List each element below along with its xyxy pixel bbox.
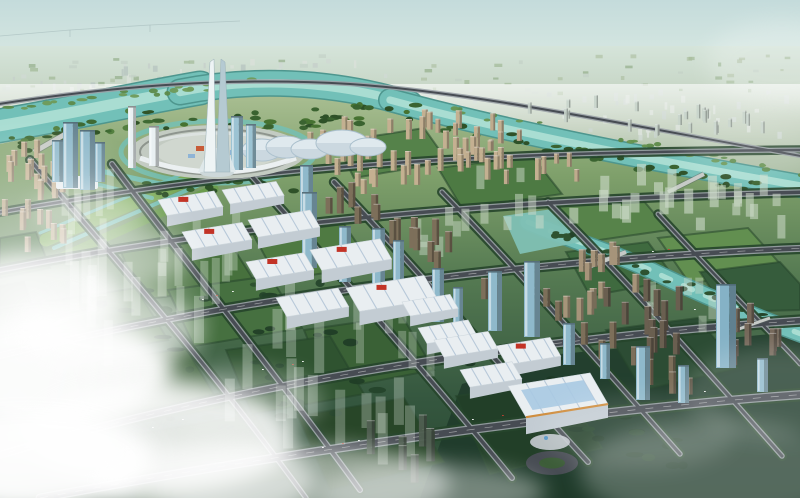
residential-slabs-part: [560, 301, 563, 321]
residential-slabs-part: [752, 303, 755, 324]
residential-slabs-part: [674, 371, 677, 393]
residential-slabs-part: [374, 204, 381, 205]
ghost-buildings-part: [684, 278, 692, 296]
distant-city-part: [519, 60, 523, 64]
distant-city-part: [421, 78, 427, 81]
clouds-part: [153, 366, 323, 438]
residential-slabs-part: [431, 112, 433, 130]
strip-office-towers: [524, 261, 540, 263]
residential-slabs-part: [541, 156, 546, 157]
residential-slabs-part: [494, 155, 500, 156]
residential-slabs-part: [411, 217, 418, 218]
distant-city-part: [121, 61, 128, 64]
residential-slabs-part: [554, 154, 557, 164]
residential-slabs-part: [658, 289, 661, 316]
plaza-east-towers: [246, 124, 256, 126]
residential-slabs-part: [414, 164, 418, 185]
residential-slabs-part: [622, 302, 627, 325]
residential-slabs-part: [488, 140, 493, 141]
residential-slabs-part: [391, 150, 395, 170]
residential-slabs-part: [564, 108, 568, 109]
tree-bands-part: [21, 107, 28, 110]
residential-slabs-part: [703, 110, 707, 111]
residential-slabs-part: [587, 291, 594, 292]
tree-bands-part: [170, 88, 179, 93]
distant-city-part: [29, 64, 36, 68]
residential-slabs-part: [530, 102, 531, 114]
ghost-buildings-part: [612, 203, 621, 218]
tree-bands-part: [163, 126, 169, 130]
residential-slabs-part: [654, 289, 659, 316]
residential-slabs-part: [410, 119, 412, 139]
distant-city-part: [313, 63, 318, 68]
residential-slabs-part: [338, 158, 340, 175]
residential-slabs-part: [341, 187, 344, 214]
residential-slabs-part: [445, 231, 450, 252]
ghost-buildings-part: [773, 194, 781, 206]
ghost-buildings-part: [777, 215, 785, 239]
strip-office-towers: [571, 323, 575, 365]
strip-office-towers: [453, 287, 463, 289]
distant-city-part: [319, 54, 326, 58]
residential-slabs-part: [431, 428, 434, 461]
tree-bands-part: [654, 142, 661, 146]
tree-bands-part: [679, 171, 688, 175]
ghost-buildings-part: [708, 295, 716, 319]
residential-slabs-part: [604, 287, 609, 307]
residential-slabs-part: [743, 111, 747, 112]
residential-slabs-part: [445, 231, 452, 232]
residential-slabs-part: [413, 228, 418, 251]
tree-bands-part: [354, 116, 365, 120]
residential-slabs-part: [545, 156, 547, 174]
residential-slabs-part: [441, 148, 443, 171]
residential-slabs-part: [680, 286, 683, 310]
residential-slabs-part: [490, 113, 495, 114]
tree-bands-part: [484, 119, 491, 122]
residential-slabs-part: [602, 254, 605, 273]
residential-slabs-part: [604, 287, 611, 288]
distant-city-part: [425, 69, 433, 72]
residential-slabs-part: [398, 218, 401, 241]
residential-slabs-part: [585, 262, 590, 280]
residential-slabs-part: [745, 323, 750, 346]
residential-slabs-part: [676, 286, 683, 287]
distant-city-part: [122, 69, 124, 76]
distant-city-part: [300, 64, 308, 68]
residential-slabs-part: [438, 148, 442, 171]
residential-slabs-part: [737, 308, 740, 332]
residential-slabs-part: [769, 333, 776, 334]
residential-slabs-part: [453, 123, 458, 124]
residential-slabs-part: [697, 104, 701, 105]
residential-slabs-part: [528, 102, 531, 114]
tree-bands-part: [323, 329, 338, 335]
distant-city-part: [180, 69, 182, 73]
residential-slabs-part: [747, 303, 752, 324]
ghost-buildings-part: [631, 193, 640, 213]
residential-slabs-part: [498, 132, 501, 144]
tree-bands-part: [143, 120, 154, 124]
tree-bands-part: [645, 165, 655, 171]
ghost-buildings-part: [409, 332, 417, 369]
residential-slabs-part: [419, 415, 424, 447]
residential-slabs-part: [427, 112, 431, 130]
residential-slabs-part: [372, 168, 376, 187]
strip-office-towers: [488, 271, 502, 273]
ghost-buildings-part: [710, 182, 719, 207]
residential-slabs-part: [376, 168, 378, 187]
plaza-pavilions-part: [188, 154, 195, 158]
ghost-buildings-part: [453, 221, 461, 236]
residential-slabs-part: [367, 420, 375, 421]
tree-bands-part: [253, 329, 265, 334]
residential-slabs-part: [481, 278, 486, 299]
residential-slabs-part: [628, 119, 632, 120]
residential-slabs-part: [428, 241, 433, 262]
ghost-buildings-part: [445, 207, 453, 226]
tree-bands-part: [704, 291, 716, 295]
tree-bands-part: [27, 105, 37, 108]
strip-office-towers: [302, 192, 317, 194]
residential-slabs-part: [655, 327, 658, 353]
strip-office-towers: [393, 240, 404, 242]
tree-bands-part: [87, 96, 97, 99]
aerial-city-rendering: [0, 0, 800, 498]
distant-city-part: [115, 76, 123, 79]
residential-slabs-part: [429, 160, 431, 175]
residential-slabs-part: [598, 254, 603, 273]
ghost-buildings-part: [476, 166, 484, 190]
tree-bands-part: [642, 144, 648, 147]
hall-roof-sign: [516, 344, 526, 349]
traffic-dots-part: [302, 361, 304, 362]
tree-bands-part: [385, 106, 394, 111]
distant-city-part: [148, 63, 150, 68]
residential-slabs-part: [643, 279, 650, 280]
distant-city-part: [204, 63, 206, 68]
traffic-dots-part: [232, 291, 234, 292]
residential-slabs-part: [746, 113, 750, 114]
strip-office-towers: [563, 323, 575, 325]
residential-slabs-part: [644, 306, 649, 335]
traffic-dots-part: [668, 249, 670, 250]
distant-city-part: [354, 60, 357, 68]
distant-city-part: [583, 71, 589, 73]
residential-slabs-part: [453, 137, 459, 138]
residential-slabs-part: [426, 428, 431, 461]
tree-bands-part: [669, 165, 679, 170]
distant-city-part: [250, 59, 255, 66]
tree-bands-part: [352, 104, 361, 109]
residential-slabs-part: [658, 124, 659, 136]
ghost-buildings-part: [622, 200, 631, 223]
residential-slabs-part: [419, 116, 423, 139]
residential-slabs-part: [669, 371, 674, 393]
residential-slabs-part: [413, 228, 420, 229]
traffic-dots-part: [652, 251, 654, 252]
residential-slabs-part: [647, 337, 654, 338]
residential-slabs-part: [401, 165, 407, 166]
residential-slabs-part: [598, 254, 605, 255]
residential-slabs-part: [488, 158, 490, 180]
residential-slabs-part: [688, 123, 691, 133]
residential-slabs-part: [447, 131, 449, 149]
residential-slabs-part: [439, 119, 441, 133]
right-tall-tower: [717, 285, 720, 367]
residential-slabs-part: [378, 204, 381, 221]
residential-slabs-part: [688, 123, 692, 124]
residential-slabs-part: [597, 95, 598, 108]
plaza-east-towers: [231, 116, 243, 118]
residential-slabs-part: [485, 158, 489, 180]
residential-slabs-part: [609, 242, 616, 243]
residential-slabs-part: [387, 119, 393, 120]
residential-slabs-part: [555, 301, 560, 321]
residential-slabs-part: [626, 302, 629, 325]
residential-slabs-part: [307, 132, 313, 133]
residential-slabs-part: [664, 320, 667, 348]
tree-bands-part: [86, 120, 97, 125]
tree-bands-part: [164, 91, 170, 96]
residential-slabs-part: [330, 197, 333, 214]
residential-slabs-part: [507, 170, 509, 185]
residential-slabs-part: [450, 231, 453, 252]
residential-slabs-part: [474, 147, 477, 161]
tree-bands-part: [369, 387, 386, 393]
residential-slabs-part: [631, 346, 636, 365]
distant-city-part: [110, 79, 115, 83]
residential-slabs-part: [594, 288, 597, 309]
distant-city-part: [302, 61, 307, 64]
residential-slabs-part: [578, 169, 580, 182]
residential-slabs-part: [348, 182, 353, 207]
residential-slabs-part: [676, 286, 681, 310]
residential-slabs-part: [406, 119, 412, 120]
residential-slabs-part: [637, 274, 640, 293]
residential-slabs-part: [587, 291, 592, 315]
residential-slabs-part: [581, 322, 586, 345]
distant-city-part: [431, 64, 436, 68]
traffic-dots-part: [358, 440, 360, 441]
residential-slabs-part: [574, 169, 577, 182]
ghost-buildings-part: [732, 203, 740, 215]
residential-slabs-part: [567, 153, 570, 167]
distant-city-part: [72, 61, 78, 64]
residential-slabs-part: [714, 121, 718, 122]
residential-slabs-part: [474, 147, 479, 148]
residential-slabs-part: [474, 126, 480, 127]
residential-slabs-part: [661, 300, 668, 301]
residential-slabs-part: [438, 148, 444, 149]
residential-slabs-part: [632, 274, 639, 275]
strip-office-towers: [497, 271, 502, 331]
residential-slabs-part: [479, 147, 483, 162]
tree-bands-part: [551, 145, 562, 148]
residential-slabs-part: [423, 116, 425, 139]
tree-bands-part: [42, 101, 52, 106]
residential-slabs-part: [569, 110, 570, 119]
residential-slabs-part: [691, 123, 692, 133]
strip-office-towers: [645, 346, 650, 400]
residential-slabs-part: [655, 124, 659, 125]
residential-slabs-part: [579, 249, 586, 250]
tree-bands-part: [451, 106, 459, 111]
tree-bands-part: [130, 94, 139, 97]
distant-city-part: [326, 59, 331, 63]
residential-slabs-part: [581, 322, 588, 323]
residential-slabs-part: [579, 249, 584, 271]
residential-slabs-part: [493, 113, 495, 130]
distant-city-part: [279, 62, 283, 68]
residential-slabs-part: [435, 119, 440, 120]
residential-slabs-part: [501, 132, 503, 144]
residential-slabs-part: [706, 110, 707, 123]
residential-slabs-part: [564, 108, 567, 122]
residential-slabs-part: [405, 151, 411, 152]
distant-city-part: [69, 65, 77, 68]
clouds-part: [30, 188, 150, 236]
residential-slabs-part: [567, 108, 568, 122]
ghost-buildings-part: [515, 194, 523, 216]
tree-bands-part: [506, 132, 517, 136]
residential-slabs-part: [453, 137, 457, 161]
ghost-buildings-part: [637, 164, 646, 186]
residential-slabs-part: [637, 101, 638, 111]
ghost-buildings-part: [517, 168, 525, 182]
residential-slabs-part: [635, 101, 638, 111]
residential-slabs-part: [359, 206, 362, 223]
distant-city-part: [493, 78, 498, 80]
tree-bands-part: [537, 121, 543, 124]
residential-slabs-part: [566, 99, 570, 100]
plaza-east-towers: [247, 125, 249, 167]
strip-office-towers: [564, 324, 566, 364]
distant-city-part: [230, 65, 234, 69]
residential-slabs-part: [535, 158, 539, 180]
residential-slabs-part: [643, 279, 648, 302]
traffic-dots-part: [472, 419, 474, 420]
residential-slabs-part: [353, 182, 356, 207]
distant-city-part: [124, 66, 128, 75]
residential-slabs-part: [569, 99, 570, 107]
residential-slabs-part: [401, 165, 405, 184]
residential-slabs-part: [443, 131, 447, 149]
white-twin-towers: [150, 127, 152, 165]
tree-bands-part: [263, 125, 273, 130]
residential-slabs-part: [649, 319, 656, 320]
residential-slabs-part: [458, 154, 464, 155]
residential-slabs-part: [498, 120, 504, 121]
distant-city-part: [494, 64, 502, 67]
residential-slabs-part: [479, 147, 485, 148]
strip-office-towers: [601, 344, 603, 378]
residential-slabs-part: [520, 129, 522, 141]
residential-slabs-part: [371, 194, 378, 195]
residential-slabs-part: [511, 155, 513, 168]
tree-bands-part: [2, 106, 14, 109]
tree-bands-part: [76, 98, 87, 101]
tree-bands-part: [250, 116, 261, 121]
residential-slabs-part: [409, 227, 414, 248]
residential-slabs-part: [687, 111, 688, 119]
distant-city-part: [583, 74, 589, 78]
tree-bands-part: [618, 138, 623, 142]
residential-slabs-part: [660, 320, 665, 348]
tree-bands-part: [105, 130, 112, 133]
residential-slabs-part: [365, 179, 367, 194]
residential-slabs-part: [504, 170, 507, 185]
residential-slabs-part: [684, 111, 688, 112]
strip-office-towers: [607, 343, 610, 379]
residential-slabs-part: [622, 302, 629, 303]
residential-slabs-part: [491, 140, 493, 150]
residential-slabs-part: [361, 154, 363, 172]
residential-slabs-part: [387, 119, 391, 133]
residential-slabs-part: [570, 153, 572, 167]
residential-slabs-part: [598, 282, 603, 299]
residential-slabs-part: [428, 241, 435, 242]
residential-slabs-part: [355, 173, 361, 174]
distant-city-part: [678, 72, 683, 74]
residential-slabs-part: [669, 371, 676, 372]
ghost-buildings-part: [273, 309, 283, 349]
residential-slabs-part: [434, 251, 441, 252]
residential-slabs-part: [470, 136, 476, 137]
scene-svg: [0, 0, 800, 498]
residential-slabs-part: [418, 164, 420, 185]
tree-bands-part: [299, 120, 306, 125]
residential-slabs-part: [574, 169, 579, 170]
residential-slabs-part: [673, 333, 678, 355]
residential-slabs-part: [406, 119, 410, 139]
residential-slabs-part: [632, 274, 637, 293]
residential-slabs-part: [677, 333, 680, 355]
tree-bands-part: [154, 93, 160, 97]
residential-slabs-part: [566, 99, 569, 107]
residential-slabs-part: [507, 155, 513, 156]
strip-office-towers: [432, 268, 444, 270]
tree-bands-part: [311, 125, 322, 128]
residential-slabs-part: [610, 322, 617, 323]
distant-city-part: [631, 54, 637, 58]
residential-slabs-part: [697, 104, 700, 118]
tree-bands-part: [640, 269, 649, 275]
residential-slabs-part: [337, 187, 344, 188]
residential-slabs-part: [361, 179, 367, 180]
residential-slabs-part: [563, 296, 570, 297]
distant-city-part: [21, 75, 26, 79]
residential-slabs-part: [648, 279, 651, 302]
residential-slabs-part: [678, 114, 682, 115]
residential-slabs-part: [535, 158, 541, 159]
ghost-buildings-part: [569, 208, 578, 224]
residential-slabs-part: [502, 147, 504, 169]
residential-slabs-part: [335, 158, 341, 159]
strip-office-towers: [679, 366, 681, 402]
residential-slabs-part: [460, 110, 462, 128]
residential-slabs-part: [678, 114, 681, 125]
residential-slabs-part: [681, 114, 682, 125]
residential-slabs-part: [485, 158, 491, 159]
residential-slabs-part: [699, 104, 700, 118]
residential-slabs-part: [498, 147, 504, 148]
residential-slabs-part: [469, 151, 471, 167]
tree-bands-part: [343, 339, 358, 347]
residential-slabs-part: [359, 173, 361, 187]
residential-slabs-part: [425, 160, 429, 175]
residential-slabs-part: [419, 415, 427, 416]
